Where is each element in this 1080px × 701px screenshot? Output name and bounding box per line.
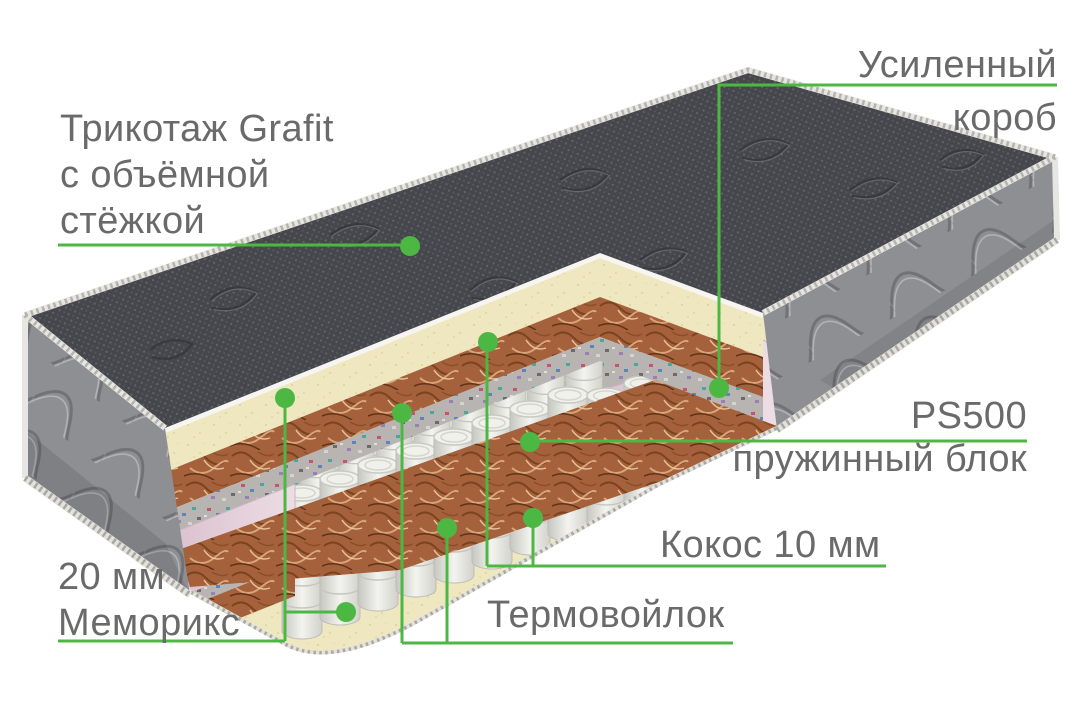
label-memorix: 20 мм Меморикс (58, 554, 240, 646)
callout-dot-spring-block (520, 432, 540, 452)
callout-dot-reinforced-box (709, 378, 729, 398)
label-coconut: Кокос 10 мм (660, 522, 881, 568)
label-knit-line2: с объёмной (60, 152, 334, 198)
callout-dot-coconut-top (478, 332, 498, 352)
callout-dot-felt-bottom (437, 518, 457, 538)
callout-dot-memorix-bottom (336, 602, 356, 622)
label-spring-subtitle: пружинный блок (733, 439, 1027, 479)
callout-dot-felt-top (392, 403, 412, 423)
label-memorix-line1: 20 мм (58, 554, 240, 600)
label-spring-block: PS500 пружинный блок (733, 396, 1027, 479)
mattress-layers-diagram: Трикотаж Grafit с объёмной стёжкой Усиле… (0, 0, 1080, 701)
callout-dot-memorix-top (275, 388, 295, 408)
label-spring-title: PS500 (733, 396, 1027, 436)
label-knit-line3: стёжкой (60, 198, 334, 244)
label-knit-line1: Трикотаж Grafit (60, 106, 334, 152)
label-box-line2: короб (858, 95, 1057, 141)
callout-dot-knit-cover (400, 236, 420, 256)
label-felt: Термовойлок (487, 592, 724, 638)
label-reinforced-box: Усиленный короб (858, 42, 1057, 141)
label-memorix-line2: Меморикс (58, 600, 240, 646)
callout-dot-coconut-bottom (523, 508, 543, 528)
label-box-line1: Усиленный (858, 42, 1057, 88)
label-coconut-text: Кокос 10 мм (660, 522, 881, 568)
label-knit-cover: Трикотаж Grafit с объёмной стёжкой (60, 106, 334, 244)
label-felt-text: Термовойлок (487, 592, 724, 638)
